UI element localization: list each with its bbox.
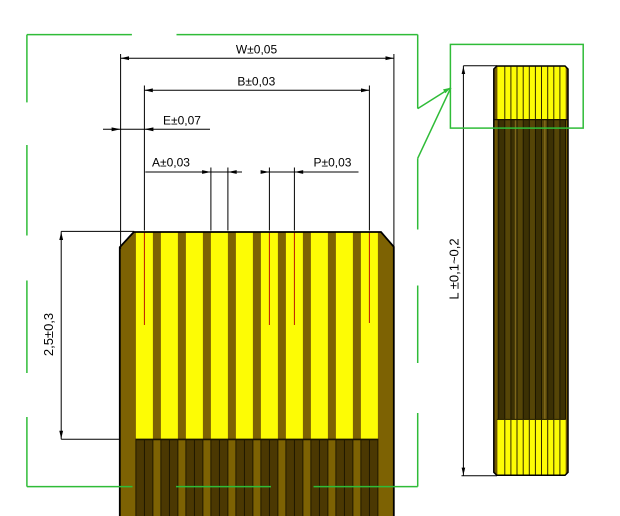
svg-text:P±0,03: P±0,03 — [314, 155, 352, 169]
svg-text:A±0,03: A±0,03 — [152, 155, 190, 169]
svg-text:L ±0,1~0,2: L ±0,1~0,2 — [447, 238, 462, 299]
svg-text:W±0,05: W±0,05 — [236, 42, 278, 56]
svg-text:E±0,07: E±0,07 — [163, 113, 201, 127]
svg-text:2,5±0,3: 2,5±0,3 — [41, 313, 56, 356]
svg-text:B±0,03: B±0,03 — [237, 74, 275, 88]
